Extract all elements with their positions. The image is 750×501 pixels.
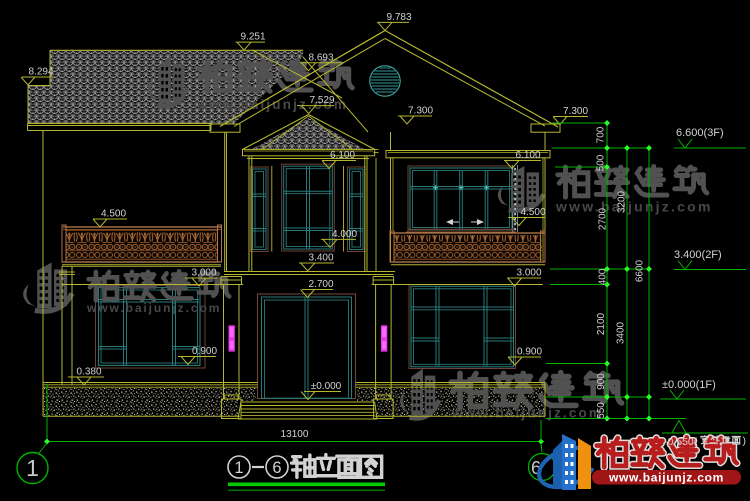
svg-text:www.baijunjz.com: www.baijunjz.com [608, 471, 724, 485]
svg-text:6.600(3F): 6.600(3F) [676, 127, 724, 139]
svg-text:6: 6 [272, 459, 281, 477]
svg-text:4.500: 4.500 [520, 207, 545, 218]
svg-text:): ) [743, 435, 747, 447]
svg-text:3.000: 3.000 [191, 268, 216, 279]
svg-text:3.400(2F): 3.400(2F) [674, 249, 722, 261]
svg-text:3.000: 3.000 [516, 268, 541, 279]
svg-text:±0.000: ±0.000 [311, 381, 342, 392]
svg-text:2.700: 2.700 [308, 279, 333, 290]
svg-text:-0.550(: -0.550( [664, 436, 698, 448]
svg-text:www.baijunjz.com: www.baijunjz.com [86, 301, 221, 315]
svg-text:www.baijunjz.com: www.baijunjz.com [555, 199, 713, 215]
svg-text:±0.000(1F): ±0.000(1F) [662, 379, 716, 391]
svg-text:1: 1 [26, 455, 39, 481]
svg-text:0.380: 0.380 [76, 367, 101, 378]
svg-text:9.783: 9.783 [386, 12, 411, 23]
svg-text:2100: 2100 [596, 312, 607, 335]
svg-text:8.693: 8.693 [308, 52, 333, 63]
svg-text:4.000: 4.000 [332, 229, 357, 240]
svg-text:0.900: 0.900 [517, 347, 542, 358]
svg-text:2700: 2700 [598, 207, 609, 230]
svg-text:3.400: 3.400 [308, 253, 333, 264]
svg-text:3200: 3200 [617, 190, 628, 213]
svg-text:3400: 3400 [616, 321, 627, 344]
svg-text:4.500: 4.500 [101, 209, 126, 220]
svg-text:500: 500 [596, 154, 607, 171]
svg-text:550: 550 [596, 402, 607, 419]
svg-text:7.300: 7.300 [563, 106, 588, 117]
svg-text:9.251: 9.251 [240, 32, 265, 43]
svg-text:7.300: 7.300 [408, 106, 433, 117]
svg-text:7.529: 7.529 [309, 95, 334, 106]
svg-text:0.900: 0.900 [192, 346, 217, 357]
svg-text:700: 700 [596, 126, 607, 143]
svg-text:900: 900 [596, 373, 607, 390]
svg-text:6.100: 6.100 [330, 150, 355, 161]
svg-text:13100: 13100 [281, 429, 309, 440]
svg-text:6600: 6600 [635, 259, 646, 282]
svg-text:8.294: 8.294 [28, 67, 53, 78]
svg-text:1: 1 [234, 459, 243, 477]
svg-text:400: 400 [598, 268, 609, 285]
svg-text:6.100: 6.100 [515, 150, 540, 161]
